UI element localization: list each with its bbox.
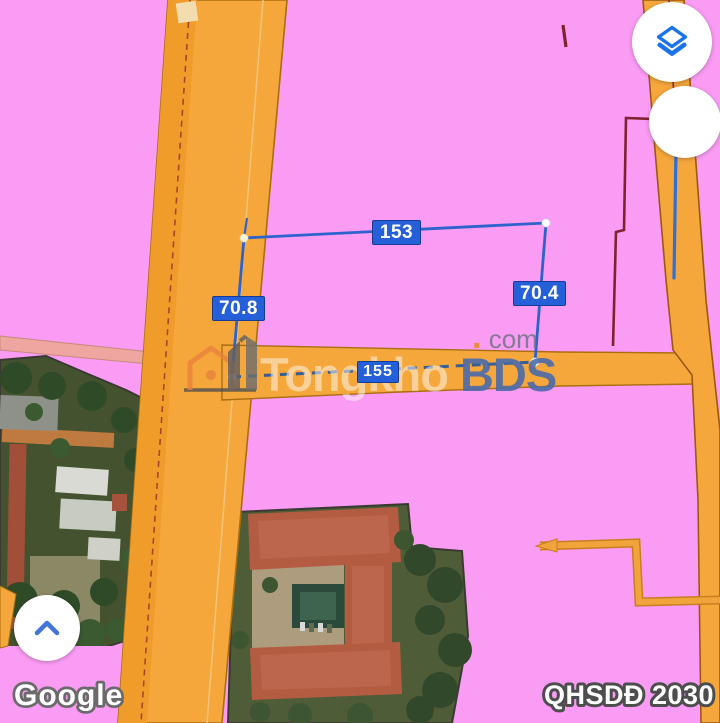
map-app-screen: Tongkho BDS . com 153 70.4 70.8 155 Goog… bbox=[0, 0, 720, 723]
svg-text:. com: . com bbox=[472, 318, 538, 356]
google-logo-text: Google bbox=[14, 679, 123, 712]
secondary-map-button[interactable] bbox=[649, 86, 720, 158]
plan-badge: QHSDĐ 2030 bbox=[538, 672, 720, 716]
plan-badge-text: QHSDĐ 2030 bbox=[544, 680, 714, 710]
layers-button[interactable] bbox=[632, 2, 712, 82]
watermark-text-1: Tongkho bbox=[260, 348, 448, 401]
watermark-dot: . bbox=[472, 318, 481, 356]
chevron-up-icon bbox=[29, 615, 65, 641]
expand-button[interactable] bbox=[14, 595, 80, 661]
svg-text:Tongkho BDS: Tongkho BDS bbox=[260, 348, 556, 401]
road-patch bbox=[176, 1, 199, 24]
layers-icon bbox=[653, 23, 691, 61]
watermark-tld: com bbox=[489, 324, 538, 354]
google-attribution: Google bbox=[8, 672, 148, 718]
measurement-label-top: 153 bbox=[372, 220, 421, 245]
drawn-line-right-road bbox=[674, 148, 676, 278]
measurement-label-left: 70.8 bbox=[212, 296, 265, 321]
measurement-label-bottom: 155 bbox=[357, 361, 399, 383]
vertex-dot-top-right[interactable] bbox=[542, 219, 550, 227]
vertex-dot-top-left[interactable] bbox=[240, 234, 248, 242]
measurement-label-right: 70.4 bbox=[513, 281, 566, 306]
